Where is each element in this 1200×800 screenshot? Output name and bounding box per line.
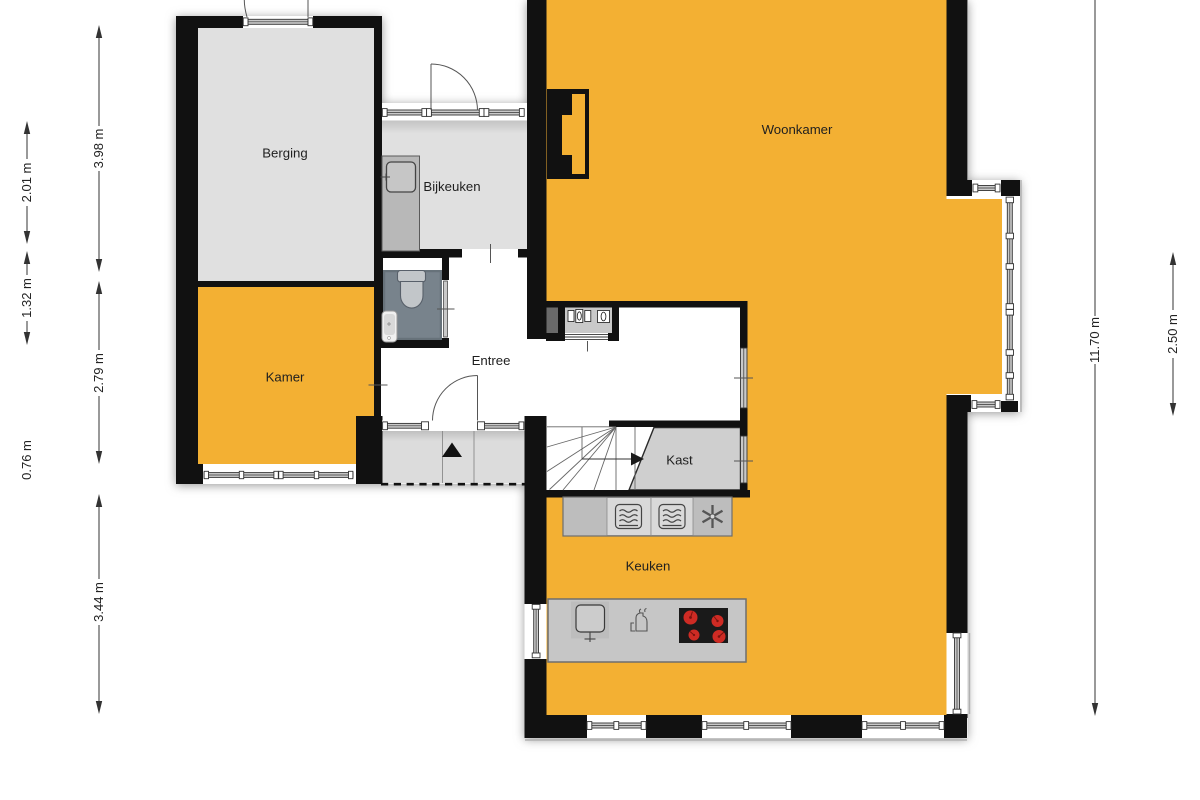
svg-text:0.76 m: 0.76 m xyxy=(19,440,34,480)
svg-text:Entree: Entree xyxy=(472,353,511,368)
svg-text:Keuken: Keuken xyxy=(626,559,671,574)
svg-text:3.98 m: 3.98 m xyxy=(91,129,106,169)
svg-text:2.50 m: 2.50 m xyxy=(1165,314,1180,354)
svg-text:Bijkeuken: Bijkeuken xyxy=(423,179,480,194)
svg-text:Woonkamer: Woonkamer xyxy=(762,122,833,137)
svg-text:2.79 m: 2.79 m xyxy=(91,353,106,393)
svg-text:Kamer: Kamer xyxy=(266,370,305,385)
svg-text:1.32 m: 1.32 m xyxy=(19,278,34,318)
svg-text:3.44 m: 3.44 m xyxy=(91,582,106,622)
svg-text:Kast: Kast xyxy=(666,453,693,468)
svg-text:11.70 m: 11.70 m xyxy=(1087,317,1102,363)
svg-text:2.01 m: 2.01 m xyxy=(19,163,34,203)
svg-text:Berging: Berging xyxy=(262,146,307,161)
